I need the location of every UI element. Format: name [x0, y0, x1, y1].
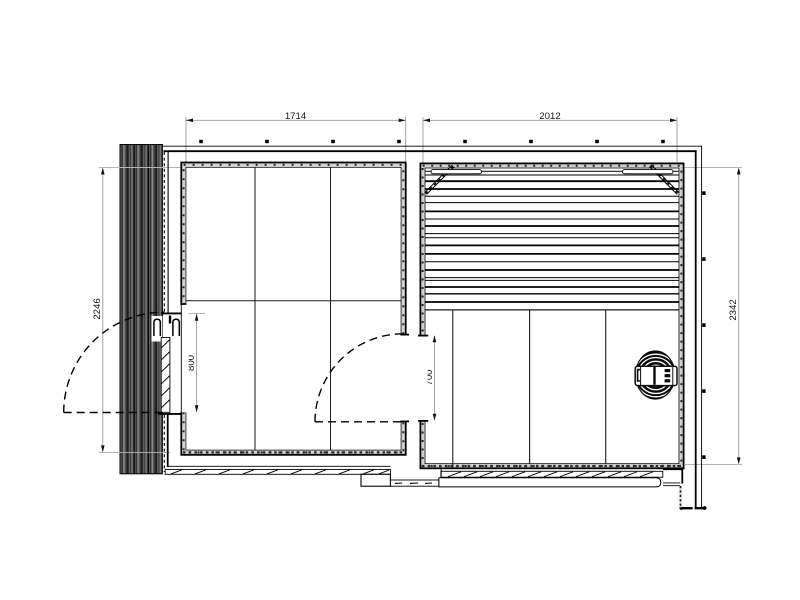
- svg-text:2012: 2012: [539, 111, 560, 122]
- svg-text:1714: 1714: [285, 111, 307, 122]
- svg-text:2342: 2342: [728, 299, 739, 320]
- svg-text:2246: 2246: [92, 298, 103, 319]
